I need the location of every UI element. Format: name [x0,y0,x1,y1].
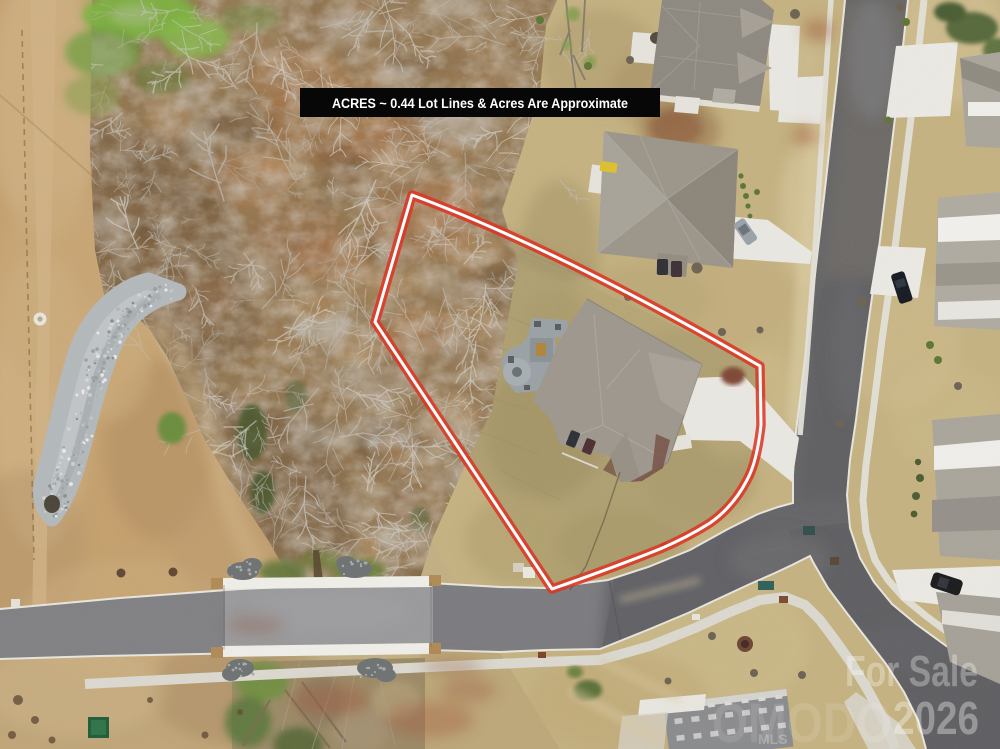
svg-text:MLS: MLS [758,731,788,747]
svg-text:2026: 2026 [893,692,979,744]
svg-text:For Sale: For Sale [845,647,978,696]
svg-text:OMODO: OMODO [712,691,892,749]
svg-text:ACRES ~ 0.44 Lot Lines & Acres: ACRES ~ 0.44 Lot Lines & Acres Are Appro… [332,96,628,112]
